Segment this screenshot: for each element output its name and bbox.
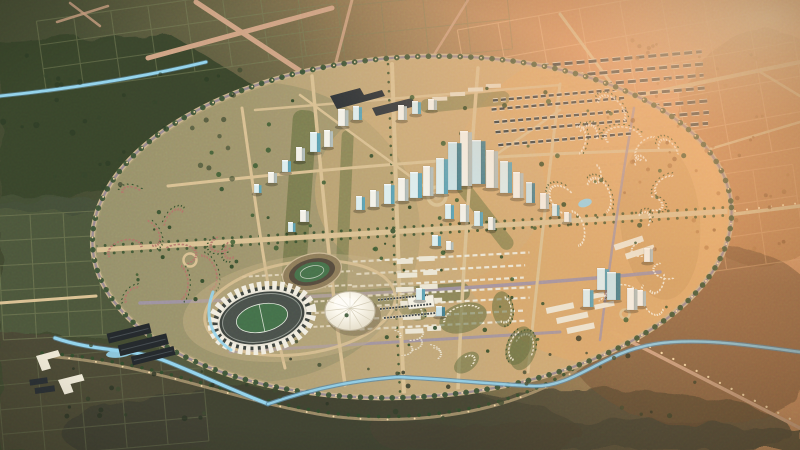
aerial-city-svg [0, 0, 800, 450]
film-grain [0, 0, 800, 450]
aerial-city-render [0, 0, 800, 450]
